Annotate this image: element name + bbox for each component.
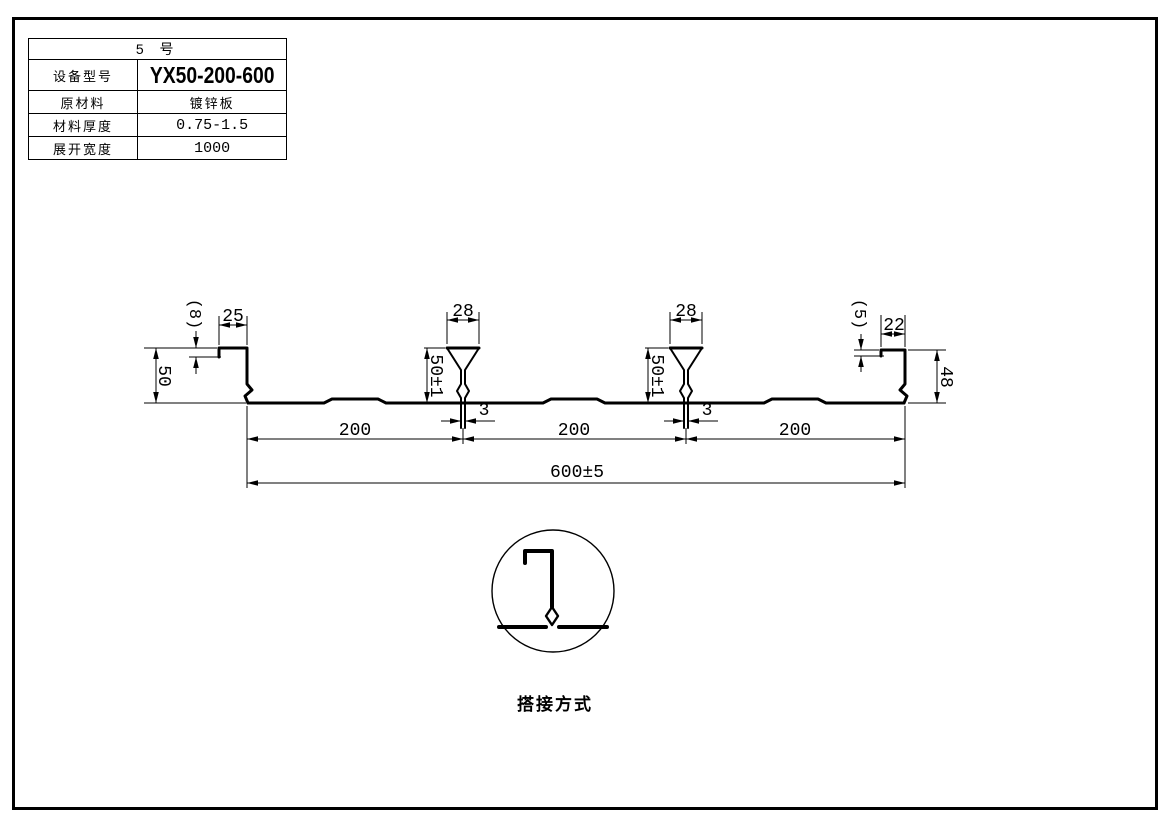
dim-left-lip-text: (8)	[184, 299, 203, 330]
spec-table: 5 号 设备型号 YX50-200-600 原材料 镀锌板 材料厚度 0.75-…	[28, 38, 287, 160]
dim-left-flange: 25	[219, 307, 247, 345]
dim-rib2-height: 50±1	[645, 348, 668, 403]
spec-row-model: 设备型号 YX50-200-600	[29, 60, 287, 91]
funnel-rib-2	[670, 348, 702, 428]
dimension-lines: 50 (8) 25 28	[144, 299, 955, 488]
dim-seam2-text: 3	[702, 401, 713, 421]
spec-label-material: 原材料	[29, 91, 138, 114]
dim-right-flange: 22	[881, 315, 905, 347]
spec-title-row: 5 号	[29, 39, 287, 60]
lap-joint-hook	[525, 551, 552, 607]
dim-left-lip: (8)	[184, 299, 221, 374]
spec-value-width: 1000	[138, 137, 287, 160]
dim-overall: 600±5	[247, 463, 905, 483]
spec-label-thickness: 材料厚度	[29, 114, 138, 137]
model-number: YX50-200-600	[150, 62, 275, 89]
dim-rib1-height: 50±1	[424, 348, 445, 403]
dim-rib1-width-text: 28	[452, 302, 474, 322]
spec-row-material: 原材料 镀锌板	[29, 91, 287, 114]
dim-overall-text: 600±5	[550, 463, 604, 483]
spec-row-thickness: 材料厚度 0.75-1.5	[29, 114, 287, 137]
dim-left-height: 50	[144, 348, 246, 403]
dim-left-flange-text: 25	[222, 307, 244, 327]
spec-title: 5 号	[29, 39, 287, 60]
spec-label-width: 展开宽度	[29, 137, 138, 160]
dim-right-flange-text: 22	[883, 316, 905, 336]
profile-right-edge	[881, 350, 907, 403]
lap-joint-crimp	[546, 607, 558, 625]
spec-value-thickness: 0.75-1.5	[138, 114, 287, 137]
funnel-rib-1	[447, 348, 479, 428]
dim-pitch2-text: 200	[558, 421, 590, 441]
dim-right-height-text: 48	[935, 366, 955, 388]
dim-rib1-width: 28	[447, 302, 479, 344]
lap-joint-caption: 搭接方式	[517, 694, 593, 715]
profile-left-edge	[219, 348, 252, 403]
dim-right-lip: (5)	[849, 299, 884, 372]
dim-pitch-row: 200 200 200	[247, 421, 905, 441]
dim-pitch1-text: 200	[339, 421, 371, 441]
dim-seam1-text: 3	[479, 401, 490, 421]
dim-rib2-width: 28	[670, 302, 702, 344]
dim-rib1-height-text: 50±1	[425, 354, 445, 397]
panel-profile	[219, 348, 907, 428]
dim-pitch3-text: 200	[779, 421, 811, 441]
profile-baseline	[248, 399, 904, 403]
spec-label-model: 设备型号	[29, 60, 138, 91]
lap-joint-detail: 搭接方式	[492, 530, 614, 715]
dim-right-height: 48	[908, 350, 955, 403]
dim-rib2-width-text: 28	[675, 302, 697, 322]
spec-value-model: YX50-200-600	[138, 60, 287, 91]
dim-left-height-text: 50	[153, 365, 173, 387]
drawing-sheet: 5 号 设备型号 YX50-200-600 原材料 镀锌板 材料厚度 0.75-…	[0, 0, 1169, 827]
spec-row-width: 展开宽度 1000	[29, 137, 287, 160]
spec-value-material: 镀锌板	[138, 91, 287, 114]
dim-rib2-height-text: 50±1	[646, 354, 666, 397]
dim-right-lip-text: (5)	[849, 299, 868, 330]
